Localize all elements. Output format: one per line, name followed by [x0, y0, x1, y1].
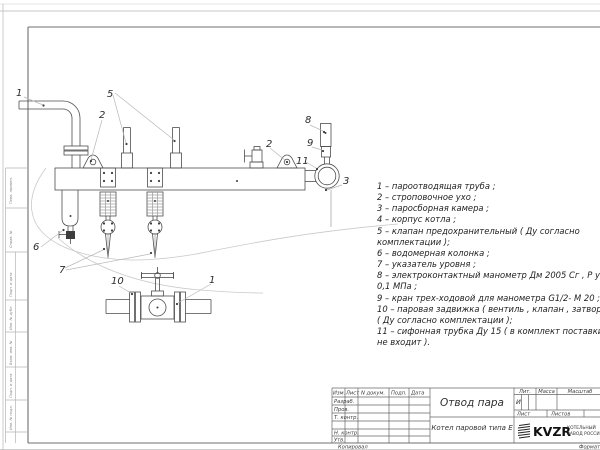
- parts-list-line: ( Ду согласно комплектации );: [377, 315, 600, 326]
- tb-row-nkontr: Н. контр.: [334, 431, 359, 437]
- margin-stamp-label: Справ. №: [9, 230, 13, 248]
- parts-list-line: комплектации );: [377, 237, 600, 248]
- tb-col-izm: Изм.: [333, 391, 345, 397]
- tb-sheets-label: Листов: [550, 412, 570, 418]
- margin-stamp-label: Перв. примен.: [9, 177, 13, 204]
- margin-stamp-boxes: Перв. примен. Справ. № Подп. и дата Инв.…: [6, 168, 29, 443]
- lifting-lug-left: [83, 155, 103, 168]
- drawing-subtitle: Котел паровой типа Е: [431, 424, 513, 432]
- tb-sheet-label: Лист: [516, 412, 531, 418]
- parts-list-line: 3 – паросборная камера ;: [377, 203, 600, 214]
- callout-8: 8: [305, 115, 311, 126]
- parts-list-line: 8 – электроконтактный манометр Дм 2005 С…: [377, 270, 600, 281]
- margin-stamp-label: Инв. № подл.: [9, 405, 13, 430]
- tb-row-razrab: Разраб.: [334, 399, 354, 405]
- callout-1b: 1: [209, 275, 215, 286]
- parts-list-line: 9 – кран трех-ходовой для манометра G1/2…: [377, 293, 600, 304]
- parts-list-line: 7 – указатель уровня ;: [377, 259, 600, 270]
- callout-2: 2: [99, 110, 105, 121]
- tb-row-tkontr: Т. контр.: [334, 415, 358, 421]
- parts-list-line: 10 – паровая задвижка ( вентиль , клапан…: [377, 304, 600, 315]
- callout-10: 10: [111, 276, 124, 287]
- callout-9: 9: [307, 138, 313, 149]
- manometer: [321, 124, 332, 147]
- margin-stamp-label: Инв. № дубл.: [9, 305, 13, 330]
- tb-row-utv: Утв.: [334, 438, 345, 444]
- callout-numbers: 1 2 5 2 8 9 11 3 6 7 10 1: [16, 88, 349, 287]
- parts-list-line: 1 – пароотводящая труба ;: [377, 181, 600, 192]
- callout-2b: 2: [266, 139, 272, 150]
- small-valve: [245, 147, 264, 169]
- parts-list-line: 0,1 МПа ;: [377, 281, 600, 292]
- kvzr-coil-icon: [518, 424, 530, 438]
- callout-5: 5: [107, 89, 113, 100]
- parts-list-line: 6 – водомерная колонка ;: [377, 248, 600, 259]
- tb-mass-label: Масса: [538, 389, 555, 395]
- parts-list-line: 5 – клапан предохранительный ( Ду соглас…: [377, 226, 600, 237]
- three-way-cock: [322, 147, 331, 165]
- copied-label: Копировал: [338, 444, 368, 450]
- tb-lit-label: Лит.: [518, 389, 531, 395]
- parts-list-line: 11 – сифонная трубка Ду 15 ( в комплект …: [377, 326, 600, 337]
- level-indicator-left: [100, 168, 116, 258]
- tb-row-prov: Пров.: [334, 407, 349, 413]
- steam-outlet-pipe: [19, 101, 88, 168]
- parts-list-line: 2 – строповочное ухо ;: [377, 192, 600, 203]
- tb-lit-value: И: [516, 398, 521, 406]
- format-label: Формат: [579, 444, 600, 450]
- kvzr-caption-1: КОТЕЛЬНЫЙ: [567, 424, 596, 431]
- tb-col-doc: N докум.: [361, 391, 385, 397]
- margin-stamp-label: Подп. и дата: [9, 273, 13, 297]
- parts-list-line: не входит ).: [377, 337, 600, 348]
- kvzr-caption-2: ЗАВОД РОССИИ: [567, 431, 600, 437]
- siphon-tube: [305, 164, 339, 188]
- level-indicator-right: [147, 168, 163, 258]
- tb-col-list: Лист: [345, 391, 360, 397]
- steam-header-pipe: [55, 168, 305, 190]
- kvzr-logo-text: KVZR: [533, 424, 571, 439]
- callout-7: 7: [59, 265, 66, 276]
- tb-col-sign: Подп.: [391, 391, 407, 397]
- parts-list: 1 – пароотводящая труба ; 2 – строповочн…: [377, 181, 600, 348]
- parts-list-line: 4 – корпус котла ;: [377, 214, 600, 225]
- drawing-title: Отвод пара: [440, 397, 504, 409]
- margin-stamp-label: Взам. инв. №: [9, 340, 13, 365]
- callout-3: 3: [343, 176, 349, 187]
- water-gauge-column: [59, 190, 78, 244]
- callout-11: 11: [296, 156, 309, 167]
- callout-1: 1: [16, 88, 22, 99]
- tb-scale-label: Масштаб: [568, 389, 593, 395]
- drawing-sheet: { "drawing": { "callouts": [ {"n": "1"},…: [0, 0, 600, 450]
- kvzr-logo: KVZR КОТЕЛЬНЫЙ ЗАВОД РОССИИ: [518, 424, 600, 439]
- callout-6: 6: [33, 242, 39, 253]
- safety-valve-right: [171, 128, 182, 169]
- tb-col-date: Дата: [410, 391, 424, 397]
- margin-stamp-label: Подп. и дата: [9, 374, 13, 398]
